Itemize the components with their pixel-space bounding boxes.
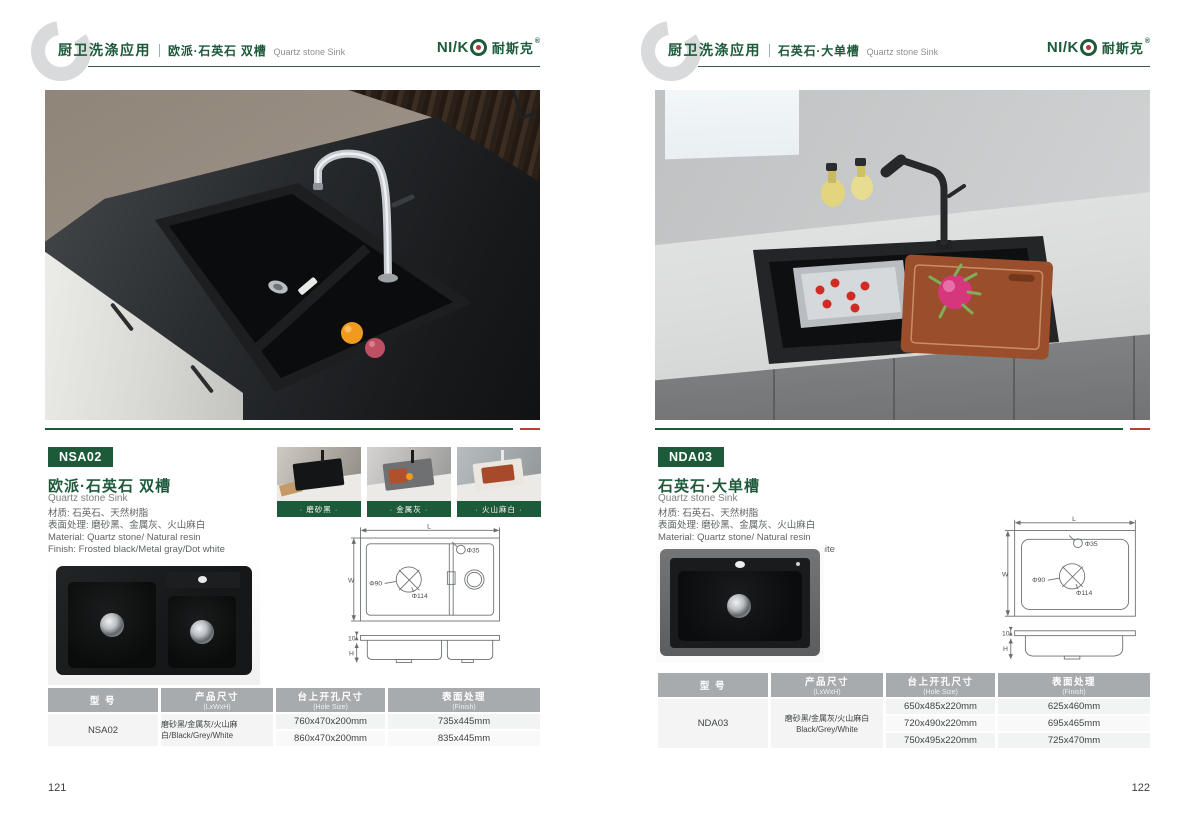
product-specs-text: 材质: 石英石、天然树脂 表面处理: 磨砂黑、金属灰、火山麻白 Material… <box>48 508 225 556</box>
page-header: 厨卫洗涤应用 石英石·大单槽 Quartz stone Sink <box>668 40 938 60</box>
hero-photo-double-sink <box>45 90 540 420</box>
dimension-drawing: L W Φ35 Φ90 Φ114 10 H <box>1002 514 1148 660</box>
dim-hole: Φ35 <box>467 548 480 555</box>
size-cell: 760x470x200mm <box>276 714 385 729</box>
header-subtitle: Quartz stone Sink <box>867 47 939 57</box>
header-subtitle: Quartz stone Sink <box>274 47 346 57</box>
dimension-drawing: L W Φ35 Φ90 Φ114 10 H <box>348 520 512 668</box>
header-divider <box>159 44 160 57</box>
spec-line: 材质: 石英石、天然树脂 <box>48 508 225 520</box>
hole-cell: 735x445mm <box>388 714 540 729</box>
swatch-label: · 火山麻白 · <box>457 501 541 517</box>
swatch-metal-gray: · 金属灰 · <box>367 447 451 517</box>
model-cell: NSA02 <box>48 714 158 746</box>
brand-logo-text: NI/K <box>437 39 469 56</box>
swatch-dot-white: · 火山麻白 · <box>457 447 541 517</box>
swatch-label: · 金属灰 · <box>367 501 451 517</box>
sink-scene-icon <box>45 90 540 420</box>
header-category: 厨卫洗涤应用 <box>668 40 761 60</box>
hero-photo-single-sink <box>655 90 1150 420</box>
spec-line: Finish: Frosted black/Metal gray/Dot whi… <box>48 544 225 556</box>
col-header-size: 产品尺寸 (LxWxH) <box>161 688 273 712</box>
hole-cell: 835x445mm <box>388 731 540 746</box>
model-badge: NSA02 <box>48 447 113 467</box>
product-title-en: Quartz stone Sink <box>48 493 127 504</box>
drain-icon <box>190 620 214 644</box>
page-number: 122 <box>1132 782 1150 794</box>
accent-divider <box>45 428 540 430</box>
finish-line: 磨砂黑/金属灰/火山麻白 <box>785 713 869 724</box>
dim-drain-inner: Φ90 <box>1032 577 1045 584</box>
col-header-size: 产品尺寸 (LxWxH) <box>771 673 883 697</box>
finish-cell: 磨砂黑/金属灰/火山麻白/Black/Grey/White <box>161 714 273 746</box>
registered-mark: ® <box>535 38 540 45</box>
hole-cell: 695x465mm <box>998 716 1150 731</box>
size-cell: 720x490x220mm <box>886 716 995 731</box>
spec-line: Material: Quartz stone/ Natural resin <box>48 532 225 544</box>
col-header-finish: 表面处理 (Finish) <box>998 673 1150 697</box>
size-cell: 750x495x220mm <box>886 733 995 748</box>
product-photo-top-view <box>48 558 260 685</box>
dim-lip: 10 <box>348 635 356 642</box>
col-header-hole: 台上开孔尺寸 (Hole Size) <box>886 673 995 697</box>
dim-H: H <box>349 651 354 658</box>
header-rule <box>698 66 1150 67</box>
drain-icon <box>727 594 751 618</box>
product-photo-top-view <box>656 545 824 662</box>
spec-line: 表面处理: 磨砂黑、金属灰、火山麻白 <box>48 520 225 532</box>
dim-W: W <box>348 577 355 584</box>
model-cell: NDA03 <box>658 699 768 748</box>
col-header-model: 型 号 <box>48 688 158 712</box>
spec-table: 型 号 产品尺寸 (LxWxH) 台上开孔尺寸 (Hole Size) 表面处理… <box>48 688 540 746</box>
hole-cell: 625x460mm <box>998 699 1150 714</box>
header-rule <box>88 66 540 67</box>
logo-o-icon <box>470 39 487 56</box>
brand-logo-cn: 耐斯克 <box>492 38 534 57</box>
swatch-label: · 磨砂黑 · <box>277 501 361 517</box>
sink-scene-icon <box>655 90 1150 420</box>
drain-icon <box>100 613 124 637</box>
size-cell: 650x485x220mm <box>886 699 995 714</box>
header-title: 欧派·石英石 双槽 <box>168 42 267 59</box>
brand-logo: NI/K 耐斯克 ® <box>437 38 540 57</box>
spec-line: 材质: 石英石、天然树脂 <box>658 508 835 520</box>
dim-hole: Φ35 <box>1085 541 1098 548</box>
registered-mark: ® <box>1145 38 1150 45</box>
logo-o-icon <box>1080 39 1097 56</box>
dim-lip: 10 <box>1002 631 1010 638</box>
dim-drain-outer: Φ114 <box>1076 590 1092 597</box>
dim-drain-inner: Φ90 <box>369 580 382 587</box>
size-cell: 860x470x200mm <box>276 731 385 746</box>
col-header-finish: 表面处理 (Finish) <box>388 688 540 712</box>
page-number: 121 <box>48 782 66 794</box>
dim-L: L <box>1072 516 1076 523</box>
dim-drain-outer: Φ114 <box>412 593 428 600</box>
finish-line: Black/Grey/White <box>796 724 858 735</box>
brand-logo: NI/K 耐斯克 ® <box>1047 38 1150 57</box>
header-divider <box>769 44 770 57</box>
brand-logo-text: NI/K <box>1047 39 1079 56</box>
product-title-en: Quartz stone Sink <box>658 493 737 504</box>
dim-W: W <box>1002 571 1009 578</box>
dim-L: L <box>427 523 431 530</box>
col-header-hole: 台上开孔尺寸 (Hole Size) <box>276 688 385 712</box>
finish-cell: 磨砂黑/金属灰/火山麻白 Black/Grey/White <box>771 699 883 748</box>
header-category: 厨卫洗涤应用 <box>58 40 151 60</box>
spec-line: 表面处理: 磨砂黑、金属灰、火山麻白 <box>658 520 835 532</box>
hole-cell: 725x470mm <box>998 733 1150 748</box>
page-121: 厨卫洗涤应用 欧派·石英石 双槽 Quartz stone Sink NI/K … <box>0 0 600 820</box>
page-122: 厨卫洗涤应用 石英石·大单槽 Quartz stone Sink NI/K 耐斯… <box>610 0 1200 820</box>
spec-table: 型 号 产品尺寸 (LxWxH) 台上开孔尺寸 (Hole Size) 表面处理… <box>658 673 1150 748</box>
page-header: 厨卫洗涤应用 欧派·石英石 双槽 Quartz stone Sink <box>58 40 345 60</box>
brand-logo-cn: 耐斯克 <box>1102 38 1144 57</box>
header-title: 石英石·大单槽 <box>778 42 860 59</box>
spec-line: Material: Quartz stone/ Natural resin <box>658 532 835 544</box>
col-header-model: 型 号 <box>658 673 768 697</box>
accent-divider <box>655 428 1150 430</box>
swatch-frosted-black: · 磨砂黑 · <box>277 447 361 517</box>
dim-H: H <box>1003 646 1008 653</box>
model-badge: NDA03 <box>658 447 724 467</box>
